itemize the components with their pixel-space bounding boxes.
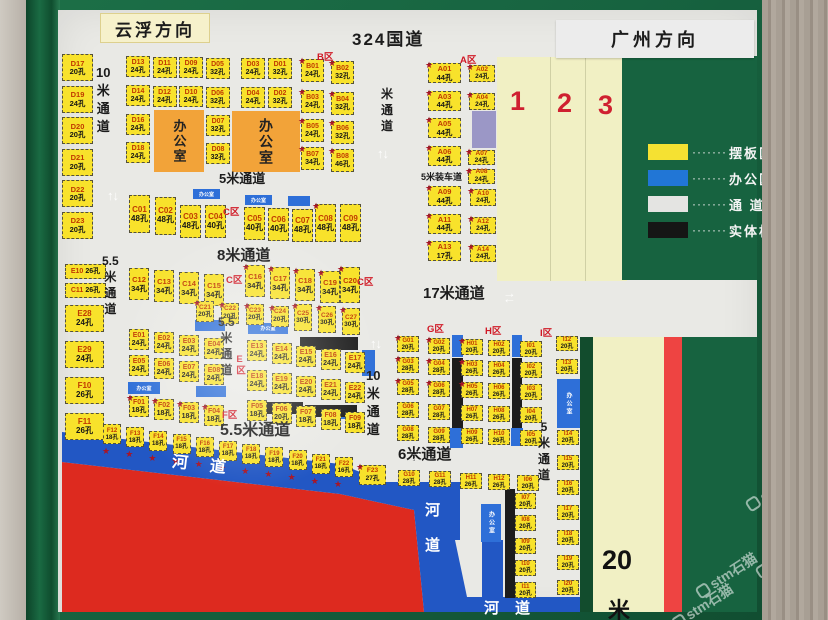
sold-star-icon: ★ <box>317 269 325 278</box>
stall-capacity: 34孔 <box>206 291 222 299</box>
stall-id: H11 <box>466 475 477 481</box>
stall-A14: A1424孔★ <box>470 245 496 262</box>
sold-star-icon: ★ <box>425 89 433 98</box>
sold-star-icon: ★ <box>394 355 402 364</box>
stall-E07: E0724孔 <box>179 361 199 382</box>
stall-capacity: 24孔 <box>475 74 489 81</box>
stall-capacity: 20孔 <box>562 513 575 519</box>
sold-star-icon: ★ <box>425 379 433 388</box>
stall-C27: C2730孔★ <box>342 308 360 335</box>
direction-guangzhou: 广州方向 <box>556 20 754 58</box>
stall-D23: D2320孔 <box>62 212 93 239</box>
lane-20-unit: 米 <box>608 593 630 620</box>
stall-capacity: 20孔 <box>273 317 287 324</box>
pillar-block <box>472 111 496 148</box>
stall-I17: I1720孔 <box>557 505 579 520</box>
stall-id: A05 <box>438 120 452 128</box>
stall-capacity: 24孔 <box>76 355 93 363</box>
stall-id: H06 <box>493 385 504 391</box>
sold-star-icon: ★ <box>267 265 275 274</box>
stall-capacity: 24孔 <box>182 346 197 353</box>
stall-C21: C2120孔★ <box>196 301 214 322</box>
stall-I14: I1420孔 <box>557 430 579 445</box>
stall-H10: H1026孔 <box>488 429 510 445</box>
stall-id: I20 <box>564 581 572 587</box>
stall-id: H12 <box>493 476 504 482</box>
stall-I12: I1220孔 <box>556 336 578 351</box>
stall-E20: E2024孔 <box>296 376 316 397</box>
sold-star-icon: ★ <box>193 299 201 308</box>
stall-D17: D1720孔 <box>62 54 93 81</box>
stall-id: C08 <box>318 215 333 223</box>
sold-star-icon: ★ <box>298 145 306 154</box>
stall-F02: F0218孔★ <box>154 399 174 420</box>
stall-capacity: 48孔 <box>131 215 148 223</box>
corridor-label: 10米通道 <box>366 367 380 439</box>
stall-id: F13 <box>130 431 140 437</box>
stall-capacity: 18孔 <box>268 458 281 464</box>
stall-id: C19 <box>323 279 337 287</box>
stall-id: G07 <box>433 406 444 412</box>
sold-star-icon: ★ <box>465 167 473 176</box>
corridor-label: 5.5米通道 <box>220 420 290 442</box>
stall-capacity: 24孔 <box>299 357 314 364</box>
sold-star-icon: ★ <box>268 304 276 313</box>
stall-id: D23 <box>71 217 85 225</box>
stall-capacity: 24孔 <box>157 369 172 376</box>
zone-label-C: C区 <box>226 272 242 286</box>
stall-id: C20 <box>343 277 357 285</box>
stall-id: D01 <box>274 61 287 68</box>
stall-capacity: 34孔 <box>156 287 172 295</box>
stall-F21: F2118孔★ <box>312 454 330 474</box>
stall-id: E07 <box>183 364 195 371</box>
stall-id: C16 <box>248 273 262 281</box>
stall-G01: G0120孔★ <box>397 336 419 352</box>
corridor-label: 8米通道 <box>217 246 270 266</box>
stall-id: D11 <box>158 60 170 67</box>
stall-B07: B0734孔★ <box>301 147 324 170</box>
stall-id: G10 <box>403 472 414 478</box>
stall-id: F12 <box>107 428 117 434</box>
stall-capacity: 24孔 <box>157 68 172 75</box>
stall-id: D16 <box>132 117 145 124</box>
stall-capacity: 24孔 <box>274 384 289 391</box>
stall-id: F14 <box>153 434 163 440</box>
stall-D18: D1824孔 <box>126 142 150 163</box>
stall-capacity: 17孔 <box>437 252 453 260</box>
stall-id: F01 <box>133 399 145 406</box>
stall-capacity: 20孔 <box>562 538 575 544</box>
stall-capacity: 24孔 <box>131 153 146 160</box>
stall-C02: C0248孔 <box>155 197 176 235</box>
stall-id: B05 <box>306 123 319 130</box>
stall-E14: E1424孔 <box>272 343 292 364</box>
stall-id: E06 <box>158 361 170 368</box>
stall-id: D18 <box>132 145 145 152</box>
stall-B05: B0524孔★ <box>301 119 324 142</box>
stall-id: F04 <box>208 408 220 415</box>
stall-id: E22 <box>349 385 361 392</box>
lane-arrows-icon: ↑↓ <box>410 451 425 462</box>
sold-star-icon: ★ <box>467 215 475 224</box>
office-strip <box>288 196 310 206</box>
stall-id: C18 <box>298 277 312 285</box>
stall-capacity: 20孔 <box>70 163 86 171</box>
stall-capacity: 24孔 <box>184 68 199 75</box>
sold-star-icon: ★ <box>125 450 133 459</box>
stall-C25: C2530孔★ <box>294 304 312 331</box>
stall-id: D19 <box>71 91 85 99</box>
stall-id: H08 <box>493 408 504 414</box>
zone-label-F: F区 <box>222 407 237 421</box>
stall-A01: A0144孔★ <box>428 63 461 83</box>
stall-C24: C2420孔★ <box>271 306 289 327</box>
stall-E03: E0324孔 <box>179 335 199 356</box>
stall-capacity: 20孔 <box>198 312 212 319</box>
stall-id: D14 <box>132 88 145 95</box>
stall-id: I17 <box>564 506 572 512</box>
lane-arrows-icon: ↑↓ <box>107 188 118 203</box>
stall-capacity: 30孔 <box>320 320 334 327</box>
sold-star-icon: ★ <box>288 473 296 482</box>
sold-star-icon: ★ <box>311 477 319 486</box>
stall-capacity: 20孔 <box>525 371 538 377</box>
stall-capacity: 18孔 <box>129 438 142 444</box>
stall-E18: E1824孔 <box>247 370 267 391</box>
stall-capacity: 26孔 <box>85 287 100 294</box>
sold-star-icon: ★ <box>176 400 184 409</box>
stall-capacity: 16孔 <box>338 468 351 474</box>
stall-capacity: 24孔 <box>476 226 490 233</box>
legend-item: ·······摆板区 <box>648 139 774 165</box>
stall-capacity: 26孔 <box>85 268 100 275</box>
wall-right <box>762 0 828 620</box>
stall-id: E01 <box>133 332 145 339</box>
stall-capacity: 18孔 <box>299 417 314 424</box>
stall-id: I16 <box>564 481 572 487</box>
stall-I01: I0120孔 <box>520 341 542 357</box>
stall-capacity: 34孔 <box>181 289 197 297</box>
stall-id: E28 <box>77 310 91 318</box>
sold-star-icon: ★ <box>425 116 433 125</box>
stall-G10: G1028孔 <box>398 470 420 486</box>
stall-F22: F2216孔★ <box>335 457 353 477</box>
stall-capacity: 28孔 <box>402 411 415 417</box>
stall-capacity: 48孔 <box>157 216 174 224</box>
stall-capacity: 40孔 <box>270 225 287 233</box>
stall-F11: F1126孔 <box>65 413 104 440</box>
stall-capacity: 20孔 <box>561 367 574 373</box>
sold-star-icon: ★ <box>425 336 433 345</box>
stall-F03: F0318孔★ <box>179 402 199 423</box>
stall-id: F21 <box>316 457 326 463</box>
stall-capacity: 18孔 <box>314 464 327 470</box>
stall-id: G02 <box>433 340 444 346</box>
stall-H01: H0120孔★ <box>461 339 483 355</box>
sold-star-icon: ★ <box>315 304 323 313</box>
stall-id: E03 <box>183 338 195 345</box>
river-label-vertical: 河道 <box>421 502 442 572</box>
stall-capacity: 20孔 <box>70 68 86 76</box>
stall-capacity: 48孔 <box>182 222 199 230</box>
legend-dots: ······· <box>692 145 727 159</box>
stall-E01: E0124孔 <box>129 329 149 350</box>
stall-id: C17 <box>273 275 287 283</box>
stall-id: H04 <box>493 363 504 369</box>
stall-id: I18 <box>564 531 572 537</box>
stall-id: F11 <box>78 418 91 426</box>
stall-id: F18 <box>246 447 256 453</box>
stall-C23: C2320孔★ <box>246 304 264 325</box>
stall-id: H09 <box>466 430 477 436</box>
stall-D02: D0232孔 <box>268 87 292 108</box>
stall-id: B07 <box>306 151 319 158</box>
stall-C03: C0348孔 <box>180 205 201 238</box>
lane-arrows-icon: ↑↓ <box>503 292 518 303</box>
stall-id: G03 <box>402 359 413 365</box>
stall-E22: E2224孔 <box>345 382 365 403</box>
sold-star-icon: ★ <box>151 397 159 406</box>
stall-id: E10 <box>71 268 83 275</box>
stall-D11: D1124孔 <box>153 57 177 78</box>
stall-capacity: 20孔 <box>562 563 575 569</box>
stall-capacity: 24孔 <box>132 340 147 347</box>
stall-id: B03 <box>306 94 319 101</box>
stall-id: D05 <box>211 61 224 68</box>
lane-arrows-icon: ↑↓ <box>377 146 388 161</box>
stall-I18: I1820孔 <box>557 530 579 545</box>
stall-id: D02 <box>274 90 287 97</box>
stall-id: I04 <box>527 409 535 415</box>
shed-number-3: 3 <box>598 90 613 121</box>
sold-star-icon: ★ <box>291 302 299 311</box>
stall-F19: F1918孔★ <box>265 447 283 467</box>
stall-G06: G0628孔★ <box>428 381 450 397</box>
legend-item: ·······办公区 <box>648 165 774 191</box>
stall-id: C04 <box>208 213 223 221</box>
stall-capacity: 32孔 <box>335 133 350 140</box>
stall-D03: D0324孔 <box>241 58 265 79</box>
stall-capacity: 20孔 <box>433 347 446 353</box>
stall-capacity: 40孔 <box>246 224 263 232</box>
stall-D21: D2120孔 <box>62 149 93 176</box>
stall-capacity: 20孔 <box>522 484 535 490</box>
shed-number-1: 1 <box>510 86 525 117</box>
wall-left <box>0 0 28 620</box>
stall-G08: G0828孔 <box>397 425 419 441</box>
stall-B08: B0846孔★ <box>331 149 354 172</box>
stall-capacity: 28孔 <box>402 388 415 394</box>
stall-capacity: 24孔 <box>348 363 363 370</box>
stall-capacity: 34孔 <box>272 284 288 292</box>
stall-H03: H0326孔★ <box>461 360 483 376</box>
sold-star-icon: ★ <box>425 184 433 193</box>
sold-star-icon: ★ <box>264 470 272 479</box>
stall-capacity: 20孔 <box>562 438 575 444</box>
shed-number-2: 2 <box>557 88 572 119</box>
stall-id: I05 <box>527 432 535 438</box>
stall-id: F08 <box>324 412 336 419</box>
office-room: 办公室 <box>232 111 300 172</box>
zone-label-G: G区 <box>427 321 444 335</box>
stall-id: D03 <box>247 61 260 68</box>
stall-F12: F1218孔★ <box>103 424 121 444</box>
stall-C12: C1234孔 <box>129 268 149 300</box>
zone-label-C: C区 <box>223 204 239 218</box>
sold-star-icon: ★ <box>465 148 473 157</box>
stall-capacity: 32孔 <box>210 98 225 105</box>
sold-star-icon: ★ <box>312 202 320 211</box>
stall-capacity: 28孔 <box>403 479 416 485</box>
stall-capacity: 26孔 <box>466 414 479 420</box>
stall-id: E29 <box>77 346 91 354</box>
stall-id: A11 <box>438 216 451 224</box>
stall-id: D20 <box>71 123 85 131</box>
sold-star-icon: ★ <box>102 447 110 456</box>
stall-G07: G0728孔 <box>428 404 450 420</box>
stall-capacity: 32孔 <box>273 69 288 76</box>
stall-id: D17 <box>71 60 85 68</box>
stall-C07: C0748孔 <box>292 209 313 242</box>
zone-label-E: E区 <box>232 354 246 375</box>
stall-I10: I1020孔 <box>515 560 536 576</box>
stall-capacity: 24孔 <box>70 100 86 108</box>
stall-I19: I1920孔 <box>557 555 579 570</box>
stall-id: C02 <box>158 207 173 215</box>
stall-id: E05 <box>133 358 145 365</box>
stall-capacity: 20孔 <box>525 439 538 445</box>
stall-I06: I0620孔 <box>517 475 539 491</box>
corridor-label: 5.5米通道 <box>102 253 119 317</box>
stall-capacity: 26孔 <box>76 391 93 399</box>
office-strip: 办公室 <box>193 189 220 199</box>
stall-F14: F1418孔★ <box>149 431 167 451</box>
stall-id: E15 <box>300 349 312 356</box>
board-edge-tape <box>26 0 60 620</box>
stall-capacity: 44孔 <box>437 129 453 137</box>
stall-A05: A0544孔★ <box>428 118 461 138</box>
corridor-label: 5米通道 <box>219 170 265 188</box>
shed-divider <box>550 57 551 281</box>
stall-id: I03 <box>527 386 535 392</box>
stall-id: E16 <box>324 352 336 359</box>
stall-D12: D1224孔 <box>153 86 177 107</box>
stall-capacity: 18孔 <box>182 413 197 420</box>
stall-capacity: 24孔 <box>305 102 320 109</box>
stall-D19: D1924孔 <box>62 86 93 113</box>
stall-C11: C1126孔 <box>65 283 106 298</box>
stall-capacity: 24孔 <box>250 381 265 388</box>
stall-id: F15 <box>176 437 186 443</box>
sold-star-icon: ★ <box>458 337 466 346</box>
legend-swatch <box>648 196 688 212</box>
stall-F23: F2327孔★ <box>359 465 386 485</box>
stall-capacity: 28孔 <box>433 413 446 419</box>
stall-G02: G0220孔★ <box>428 338 450 354</box>
stall-D08: D0832孔 <box>206 143 230 164</box>
stall-id: D12 <box>158 89 171 96</box>
stall-F20: F2018孔★ <box>289 450 307 470</box>
sold-star-icon: ★ <box>292 267 300 276</box>
direction-yunfu: 云浮方向 <box>100 13 210 43</box>
stall-C16: C1634孔★ <box>245 265 265 297</box>
stall-id: H05 <box>466 384 477 390</box>
stall-id: G06 <box>433 383 444 389</box>
stall-id: F20 <box>292 454 302 460</box>
stall-capacity: 28孔 <box>433 390 446 396</box>
stall-F05: F0518孔 <box>247 400 267 421</box>
corridor-label: 10米通道 <box>96 64 110 136</box>
stall-id: D21 <box>71 154 85 162</box>
stall-capacity: 24孔 <box>182 372 197 379</box>
stall-id: C01 <box>132 206 147 214</box>
stall-capacity: 26孔 <box>466 391 479 397</box>
stall-id: I12 <box>563 337 571 343</box>
stall-id: C14 <box>182 280 196 288</box>
stall-capacity: 34孔 <box>342 286 358 294</box>
stall-id: E21 <box>324 382 336 389</box>
sold-star-icon: ★ <box>467 187 475 196</box>
stall-id: A01 <box>438 65 452 73</box>
stall-capacity: 24孔 <box>131 96 146 103</box>
stall-id: I06 <box>524 477 532 483</box>
legend: ·······摆板区·······办公区·······通 道·······实体柱 <box>648 139 774 243</box>
stall-H06: H0626孔 <box>488 383 510 399</box>
stall-B06: B0632孔★ <box>331 121 354 144</box>
stall-capacity: 26孔 <box>465 482 478 488</box>
zone-label-B: B区 <box>317 49 333 63</box>
stall-capacity: 44孔 <box>437 74 453 82</box>
stall-id: F03 <box>183 405 195 412</box>
stall-G03: G0328孔★ <box>397 357 419 373</box>
sold-star-icon: ★ <box>298 117 306 126</box>
stall-id: E14 <box>275 346 287 353</box>
office-room: 办公室 <box>154 110 204 172</box>
stall-capacity: 20孔 <box>402 345 415 351</box>
stall-capacity: 34孔 <box>322 288 338 296</box>
stall-G11: G1128孔 <box>429 471 451 487</box>
stall-capacity: 28孔 <box>402 366 415 372</box>
stall-capacity: 20孔 <box>525 416 538 422</box>
stall-A13: A1317孔★ <box>428 241 461 261</box>
stall-E15: E1524孔 <box>296 346 316 367</box>
sold-star-icon: ★ <box>328 147 336 156</box>
stall-id: F16 <box>200 441 210 447</box>
stall-C26: C2630孔★ <box>318 306 336 333</box>
sold-star-icon: ★ <box>339 306 347 315</box>
stall-capacity: 20孔 <box>562 463 575 469</box>
stall-id: D04 <box>247 90 260 97</box>
stall-id: B01 <box>306 63 319 70</box>
lane-arrows-icon: ↑↓ <box>370 336 381 351</box>
stall-capacity: 28孔 <box>402 434 415 440</box>
stall-id: A08 <box>476 169 488 176</box>
stall-capacity: 44孔 <box>437 101 453 109</box>
stall-id: A13 <box>438 243 452 251</box>
stall-capacity: 24孔 <box>157 97 172 104</box>
stall-capacity: 28孔 <box>433 368 446 374</box>
sold-star-icon: ★ <box>298 88 306 97</box>
dark-green-strip <box>580 337 593 612</box>
stall-I13: I1320孔 <box>556 359 578 374</box>
sold-star-icon: ★ <box>425 239 433 248</box>
stall-capacity: 18孔 <box>348 423 363 430</box>
stall-id: C13 <box>157 278 171 286</box>
stall-id: I10 <box>521 561 529 567</box>
stall-id: D06 <box>211 90 224 97</box>
stall-capacity: 24孔 <box>131 125 146 132</box>
